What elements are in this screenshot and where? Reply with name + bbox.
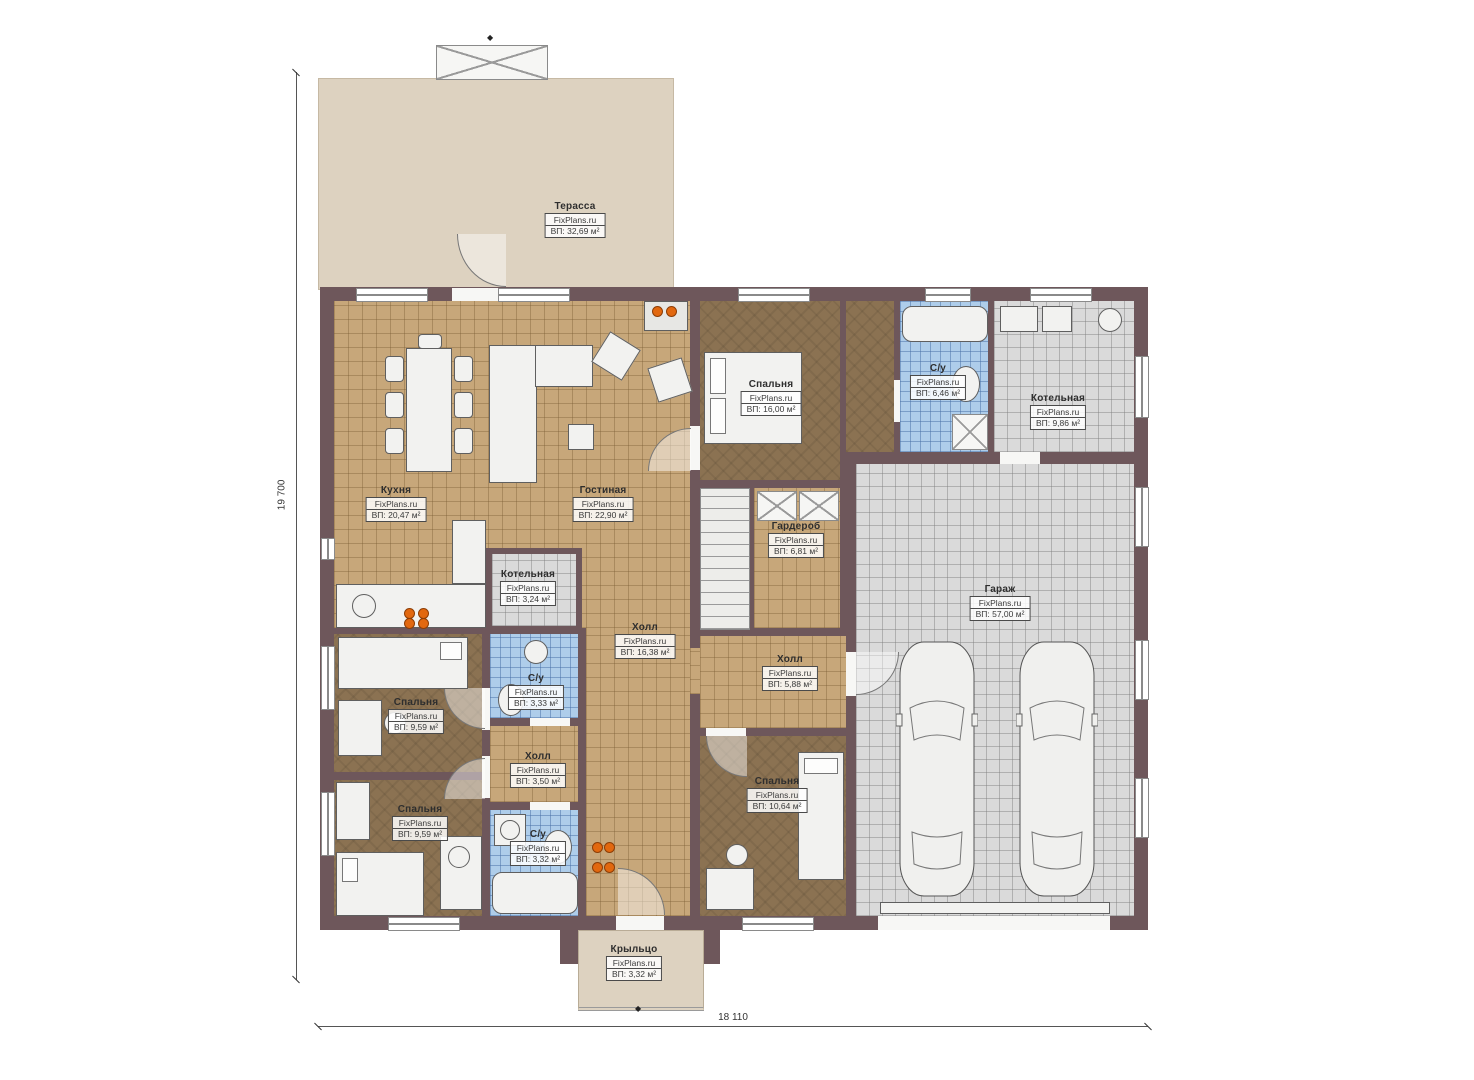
room-brand: FixPlans.ru <box>511 842 565 854</box>
corridor-top <box>846 301 894 452</box>
label-bedroom-left-lower: Спальня FixPlans.ru ВП: 9,59 м² <box>392 804 448 842</box>
room-area: ВП: 9,86 м² <box>1031 418 1085 429</box>
pillow <box>710 398 726 434</box>
label-bedroom-left-upper: Спальня FixPlans.ru ВП: 9,59 м² <box>388 697 444 735</box>
pillow <box>804 758 838 774</box>
label-bedroom-top: Спальня FixPlans.ru ВП: 16,00 м² <box>741 379 802 417</box>
door-gap-bathroom-top <box>894 380 900 422</box>
room-area: ВП: 22,90 м² <box>574 510 633 521</box>
window-bathroom-top <box>925 288 971 302</box>
door-gap-garage <box>846 652 856 696</box>
dimension-line-left <box>296 72 297 980</box>
window-bedroom-top <box>738 288 810 302</box>
room-brand: FixPlans.ru <box>911 376 965 388</box>
room-name: Спальня <box>747 776 808 787</box>
door-gap-terrace <box>452 288 504 301</box>
dining-chair <box>454 428 473 454</box>
dimension-width: 18 110 <box>718 1012 748 1023</box>
stove-burner <box>404 618 415 629</box>
room-name: Котельная <box>1030 393 1086 404</box>
car-icon <box>896 636 978 902</box>
dining-chair <box>385 356 404 382</box>
window-bedroom-bottom <box>742 917 814 931</box>
room-brand: FixPlans.ru <box>501 582 555 594</box>
closet-shelf <box>799 491 839 521</box>
room-area: ВП: 16,00 м² <box>742 404 801 415</box>
fireplace <box>644 301 688 331</box>
window-boiler-right <box>1135 356 1149 418</box>
room-brand: FixPlans.ru <box>546 214 605 226</box>
fireplace-burner <box>652 306 663 317</box>
room-area: ВП: 32,69 м² <box>546 226 605 237</box>
window-garage-right-2 <box>1135 640 1149 700</box>
label-kitchen: Кухня FixPlans.ru ВП: 20,47 м² <box>366 485 427 523</box>
room-area: ВП: 3,33 м² <box>509 698 563 709</box>
room-name: Спальня <box>392 804 448 815</box>
label-bedroom-bottom: Спальня FixPlans.ru ВП: 10,64 м² <box>747 776 808 814</box>
pillow <box>710 358 726 394</box>
desk <box>706 868 754 910</box>
room-name: Крыльцо <box>606 944 662 955</box>
dimension-height: 19 700 <box>277 480 288 511</box>
room-area: ВП: 3,32 м² <box>511 854 565 865</box>
room-area: ВП: 6,81 м² <box>769 546 823 557</box>
heater-dot <box>604 862 615 873</box>
kitchen-sink <box>352 594 376 618</box>
coffee-table <box>568 424 594 450</box>
boiler-unit <box>1000 306 1038 332</box>
label-hall-small: Холл FixPlans.ru ВП: 3,50 м² <box>510 751 566 789</box>
label-wardrobe: Гардероб FixPlans.ru ВП: 6,81 м² <box>768 521 824 559</box>
pillow <box>440 642 462 660</box>
room-area: ВП: 3,32 м² <box>607 969 661 980</box>
bathtub-top <box>902 306 988 342</box>
floor-plan: ◆ ◆ <box>0 0 1474 1080</box>
room-name: Терасса <box>545 201 606 212</box>
fireplace-burner <box>666 306 677 317</box>
room-brand: FixPlans.ru <box>393 817 447 829</box>
room-area: ВП: 9,59 м² <box>389 722 443 733</box>
door-gap-halls <box>690 648 700 694</box>
dining-chair <box>385 428 404 454</box>
room-name: С/у <box>910 363 966 374</box>
room-brand: FixPlans.ru <box>769 534 823 546</box>
room-area: ВП: 57,00 м² <box>971 609 1030 620</box>
washbasin-mid <box>524 640 548 664</box>
bathtub-lower <box>492 872 578 914</box>
room-brand: FixPlans.ru <box>511 764 565 776</box>
room-brand: FixPlans.ru <box>509 686 563 698</box>
window-garage-right-3 <box>1135 778 1149 838</box>
stove-burner <box>418 618 429 629</box>
window-bedroom-upper-left <box>321 646 335 710</box>
closet-shelf <box>757 491 797 521</box>
room-brand: FixPlans.ru <box>389 710 443 722</box>
staircase <box>700 488 750 630</box>
room-brand: FixPlans.ru <box>574 498 633 510</box>
pillow <box>342 858 358 882</box>
room-name: С/у <box>508 673 564 684</box>
porch-wall-left <box>560 930 578 964</box>
heater-dot <box>604 842 615 853</box>
desk <box>338 700 382 756</box>
heater-dot <box>592 842 603 853</box>
sofa-section <box>535 345 593 387</box>
boiler-tank <box>1098 308 1122 332</box>
window-kitchen-top <box>356 288 428 302</box>
dimension-line-bottom <box>318 1026 1148 1027</box>
vent-kitchen-left <box>321 538 335 560</box>
room-name: Спальня <box>388 697 444 708</box>
dining-chair <box>418 334 442 349</box>
door-gap-bathroom-lower <box>530 802 570 810</box>
room-name: Гараж <box>970 584 1031 595</box>
door-gap-bathroom-mid <box>530 718 570 726</box>
room-brand: FixPlans.ru <box>742 392 801 404</box>
room-brand: FixPlans.ru <box>367 498 426 510</box>
room-area: ВП: 10,64 м² <box>748 801 807 812</box>
label-garage: Гараж FixPlans.ru ВП: 57,00 м² <box>970 584 1031 622</box>
room-name: Холл <box>510 751 566 762</box>
label-hall-right: Холл FixPlans.ru ВП: 5,88 м² <box>762 654 818 692</box>
porch-marker-icon: ◆ <box>635 1004 641 1013</box>
room-brand: FixPlans.ru <box>763 667 817 679</box>
shower <box>952 414 988 450</box>
label-hall-main: Холл FixPlans.ru ВП: 16,38 м² <box>615 622 676 660</box>
room-brand: FixPlans.ru <box>1031 406 1085 418</box>
room-brand: FixPlans.ru <box>607 957 661 969</box>
door-gap-bedroom-bottom <box>706 728 746 736</box>
window-boiler-top <box>1030 288 1092 302</box>
room-area: ВП: 16,38 м² <box>616 647 675 658</box>
car-icon <box>1016 636 1098 902</box>
room-brand: FixPlans.ru <box>748 789 807 801</box>
label-bathroom-top: С/у FixPlans.ru ВП: 6,46 м² <box>910 363 966 401</box>
label-boiler-small: Котельная FixPlans.ru ВП: 3,24 м² <box>500 569 556 607</box>
room-name: Котельная <box>500 569 556 580</box>
dining-table <box>406 348 452 472</box>
room-brand: FixPlans.ru <box>971 597 1030 609</box>
label-bathroom-lower: С/у FixPlans.ru ВП: 3,32 м² <box>510 829 566 867</box>
door-gap-front <box>616 916 664 930</box>
dining-chair <box>454 392 473 418</box>
dining-chair <box>454 356 473 382</box>
wardrobe-cabinet <box>336 782 370 840</box>
label-terrace: Терасса FixPlans.ru ВП: 32,69 м² <box>545 201 606 239</box>
door-gap-bedroom-top <box>690 426 700 470</box>
terrace-steps <box>436 45 548 80</box>
door-gap-boiler-garage <box>1000 452 1040 464</box>
porch-wall-right <box>702 930 720 964</box>
room-name: Спальня <box>741 379 802 390</box>
label-bathroom-mid: С/у FixPlans.ru ВП: 3,33 м² <box>508 673 564 711</box>
room-name: Кухня <box>366 485 427 496</box>
window-living-top <box>498 288 570 302</box>
room-area: ВП: 6,46 м² <box>911 388 965 399</box>
window-bedroom-lower-bottom <box>388 917 460 931</box>
kitchen-fridge <box>452 520 486 584</box>
north-marker-icon: ◆ <box>487 33 493 42</box>
room-name: С/у <box>510 829 566 840</box>
window-garage-right-1 <box>1135 487 1149 547</box>
garage-gate-opening <box>878 916 1110 930</box>
window-bedroom-lower-left <box>321 792 335 856</box>
room-brand: FixPlans.ru <box>616 635 675 647</box>
heater-dot <box>592 862 603 873</box>
sofa <box>489 345 537 483</box>
room-area: ВП: 3,24 м² <box>501 594 555 605</box>
room-name: Гардероб <box>768 521 824 532</box>
room-name: Холл <box>762 654 818 665</box>
room-area: ВП: 3,50 м² <box>511 776 565 787</box>
room-area: ВП: 9,59 м² <box>393 829 447 840</box>
label-porch: Крыльцо FixPlans.ru ВП: 3,32 м² <box>606 944 662 982</box>
label-living: Гостиная FixPlans.ru ВП: 22,90 м² <box>573 485 634 523</box>
garage-gate-door <box>880 902 1110 914</box>
room-area: ВП: 20,47 м² <box>367 510 426 521</box>
room-name: Холл <box>615 622 676 633</box>
room-area: ВП: 5,88 м² <box>763 679 817 690</box>
room-name: Гостиная <box>573 485 634 496</box>
chair <box>448 846 470 868</box>
boiler-unit <box>1042 306 1072 332</box>
desk-chair <box>726 844 748 866</box>
label-boiler-top: Котельная FixPlans.ru ВП: 9,86 м² <box>1030 393 1086 431</box>
dining-chair <box>385 392 404 418</box>
